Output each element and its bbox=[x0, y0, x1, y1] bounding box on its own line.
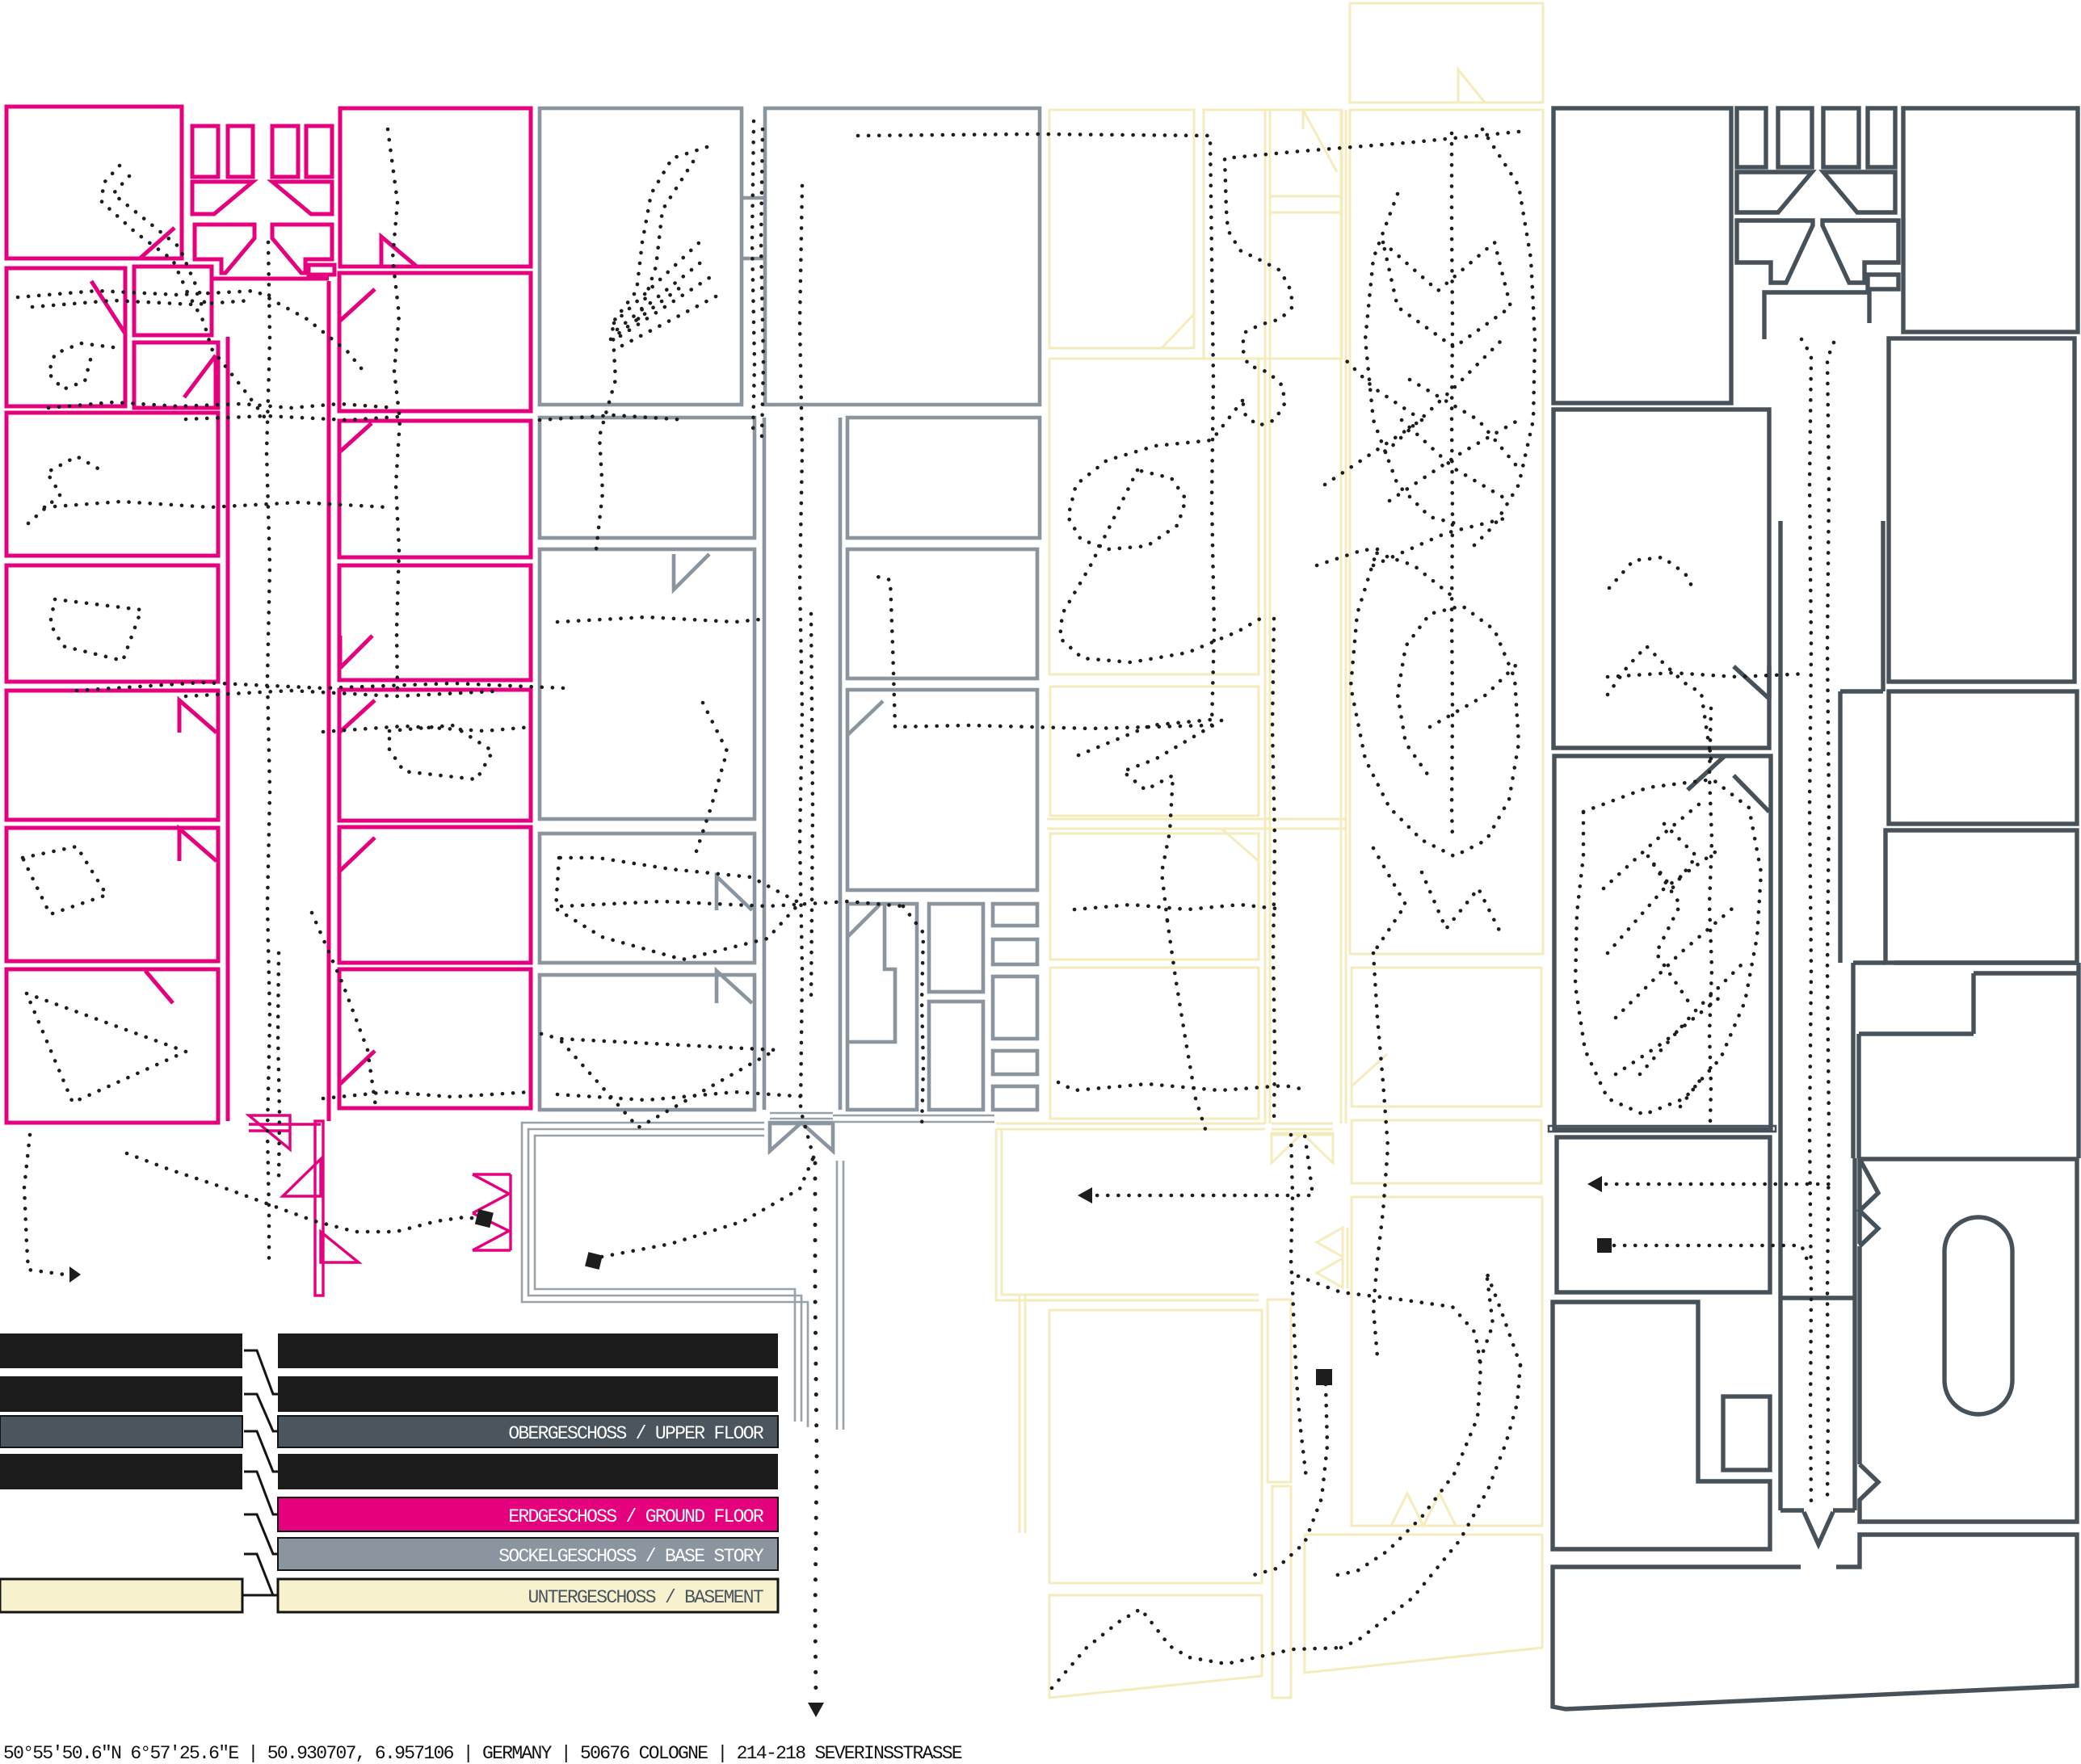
svg-text:UNTERGESCHOSS / BASEMENT: UNTERGESCHOSS / BASEMENT bbox=[528, 1587, 763, 1608]
svg-text:SOCKELGESCHOSS / BASE STORY: SOCKELGESCHOSS / BASE STORY bbox=[498, 1546, 764, 1567]
svg-text:ERDGESCHOSS / GROUND FLOOR: ERDGESCHOSS / GROUND FLOOR bbox=[508, 1506, 764, 1527]
svg-text:50°55'50.6"N 6°57'25.6"E | 50.: 50°55'50.6"N 6°57'25.6"E | 50.930707, 6.… bbox=[3, 1743, 962, 1764]
svg-text:OBERGESCHOSS / UPPER FLOOR: OBERGESCHOSS / UPPER FLOOR bbox=[508, 1423, 764, 1444]
